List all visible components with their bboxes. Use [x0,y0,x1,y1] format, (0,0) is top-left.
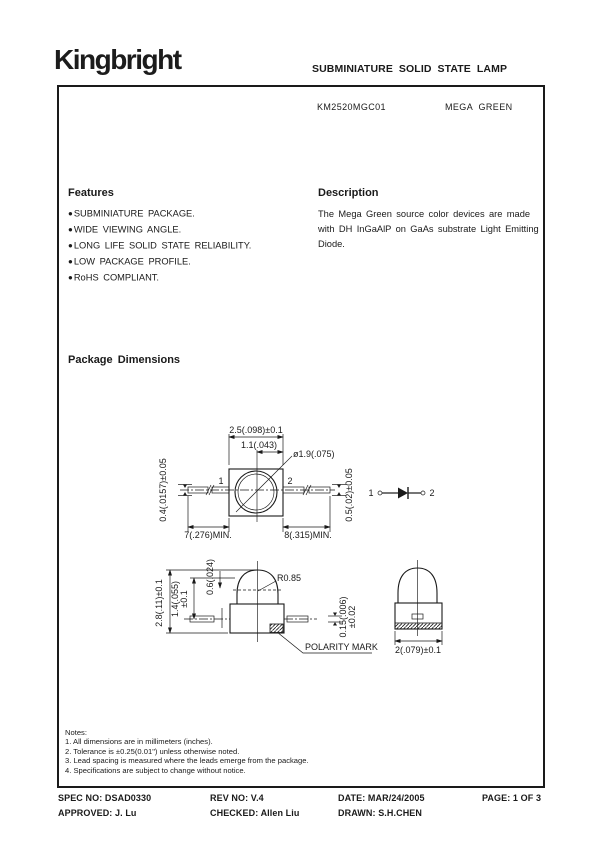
feature-item: LOW PACKAGE PROFILE. [68,254,308,270]
dim-top-half-width: 1.1(.043) [241,440,283,452]
note-item: 4. Specifications are subject to change … [65,766,309,775]
dim-lead-thickness-tol-label: ±0.02 [347,606,357,628]
polarity-mark-hatch [270,624,283,633]
notes-title: Notes: [65,728,309,737]
dim-front-width: 2(.079)±0.1 [395,631,442,655]
part-number: KM2520MGC01 [317,102,386,112]
dim-dome-offset-label: 0.6(.024) [205,559,215,595]
schematic-terminal1 [378,491,382,495]
dim-lead-length-right: 8(.315)MIN. [283,496,332,540]
features-list: SUBMINIATURE PACKAGE. WIDE VIEWING ANGLE… [68,206,308,286]
footer-spec-no: SPEC NO: DSAD0330 [58,793,151,803]
lens-diameter-leader [236,456,292,512]
dim-dome-offset: 0.6(.024) [205,559,220,595]
dim-body-height: 1.4(.055) ±0.1 [170,578,235,619]
package-dimensions-drawing: 1 2 2.5(.098)±0.1 1.1(.043) ø1.9(.075) [80,410,480,675]
description-text: The Mega Green source color devices are … [318,207,540,252]
schematic-pin1-label: 1 [368,488,373,498]
notes-section: Notes: 1. All dimensions are in millimet… [65,728,309,775]
note-item: 1. All dimensions are in millimeters (in… [65,737,309,746]
features-section: Features SUBMINIATURE PACKAGE. WIDE VIEW… [68,187,308,286]
schematic-pin2-label: 2 [429,488,434,498]
footer-date: DATE: MAR/24/2005 [338,793,425,803]
footer-drawn: DRAWN: S.H.CHEN [338,808,422,818]
front-view: 2(.079)±0.1 [395,560,442,655]
package-body-top [229,469,283,516]
note-item: 3. Lead spacing is measured where the le… [65,756,309,765]
part-color-name: MEGA GREEN [445,102,513,112]
feature-item: WIDE VIEWING ANGLE. [68,222,308,238]
schematic-terminal2 [421,491,425,495]
pin1-label: 1 [218,476,223,486]
diode-symbol [398,488,408,499]
feature-item: LONG LIFE SOLID STATE RELIABILITY. [68,238,308,254]
side-view: POLARITY MARK R0.85 2.8(.11)±0.1 1.4(.05… [154,559,378,653]
description-section: Description The Mega Green source color … [318,187,540,252]
schematic-symbol: 1 2 [368,487,434,499]
kingbright-logo: Kingbright [54,44,181,76]
dim-lead-width-right: 0.5(.02)±0.05 [332,468,354,521]
feature-item: SUBMINIATURE PACKAGE. [68,206,308,222]
features-title: Features [68,187,308,199]
feature-item: RoHS COMPLIANT. [68,270,308,286]
note-item: 2. Tolerance is ±0.25(0.01") unless othe… [65,747,309,756]
package-dimensions-title: Package Dimensions [68,354,180,366]
document-title: SUBMINIATURE SOLID STATE LAMP [312,63,522,75]
dim-dome-radius-label: R0.85 [277,573,301,583]
dim-lens-diameter-label: ø1.9(.075) [293,449,335,459]
footer-page: PAGE: 1 OF 3 [482,793,541,803]
polarity-mark-label: POLARITY MARK [305,642,378,652]
radius-leader [258,581,276,591]
footer-checked: CHECKED: Allen Liu [210,808,299,818]
dim-total-height-label: 2.8(.11)±0.1 [154,579,164,627]
dim-top-half-width-label: 1.1(.043) [241,440,277,450]
dim-lead-width-left-label: 0.4(.0157)±0.05 [158,458,168,521]
dim-lead-length-right-label: 8(.315)MIN. [284,530,332,540]
dim-lead-width-right-label: 0.5(.02)±0.05 [344,468,354,521]
description-title: Description [318,187,540,199]
front-base-hatch [395,623,442,629]
dim-lead-length-left-label: 7(.276)MIN. [184,530,232,540]
dim-top-width-label: 2.5(.098)±0.1 [229,425,282,435]
dim-body-height-tol-label: ±0.1 [179,590,189,607]
top-view: 1 2 2.5(.098)±0.1 1.1(.043) ø1.9(.075) [158,425,354,540]
dim-lead-thickness: 0.15(.006) ±0.02 [328,596,357,637]
dim-front-width-label: 2(.079)±0.1 [395,645,441,655]
footer-approved: APPROVED: J. Lu [58,808,137,818]
datasheet-page: Kingbright SUBMINIATURE SOLID STATE LAMP… [0,0,601,850]
pin2-label: 2 [287,476,292,486]
footer-rev-no: REV NO: V.4 [210,793,264,803]
dim-lead-length-left: 7(.276)MIN. [184,496,232,540]
